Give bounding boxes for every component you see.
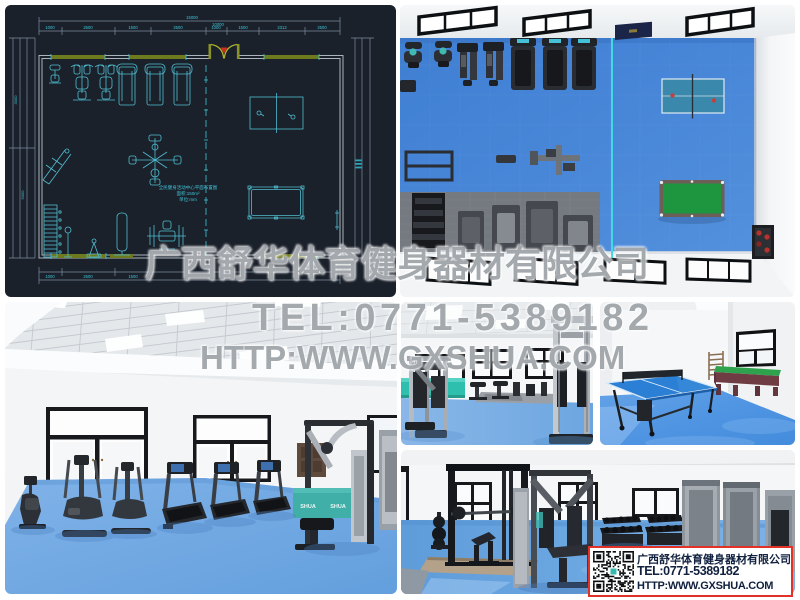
svg-text:2500: 2500 [317,25,327,30]
svg-text:2500: 2500 [83,25,93,30]
svg-text:SHUA: SHUA [330,504,346,510]
svg-text:全民健身活动中心平面布置图: 全民健身活动中心平面布置图 [159,184,218,191]
svg-text:SHUA: SHUA [300,504,316,510]
svg-text:1000: 1000 [45,274,55,279]
svg-text:1500: 1500 [128,274,138,279]
svg-text:2500: 2500 [83,274,93,279]
svg-text:2312: 2312 [277,25,287,30]
svg-text:5000: 5000 [20,190,25,200]
svg-text:15000: 15000 [186,15,198,20]
svg-text:3000: 3000 [13,95,18,105]
svg-text:1000: 1000 [45,25,55,30]
svg-text:1500: 1500 [128,25,138,30]
svg-text:10000: 10000 [212,22,224,27]
svg-text:2500: 2500 [173,25,183,30]
svg-text:1500: 1500 [238,25,248,30]
svg-text:▌▌▌: ▌▌▌ [355,158,362,169]
svg-text:单位:mm: 单位:mm [179,196,197,203]
svg-text:面积:150m²: 面积:150m² [176,190,200,197]
